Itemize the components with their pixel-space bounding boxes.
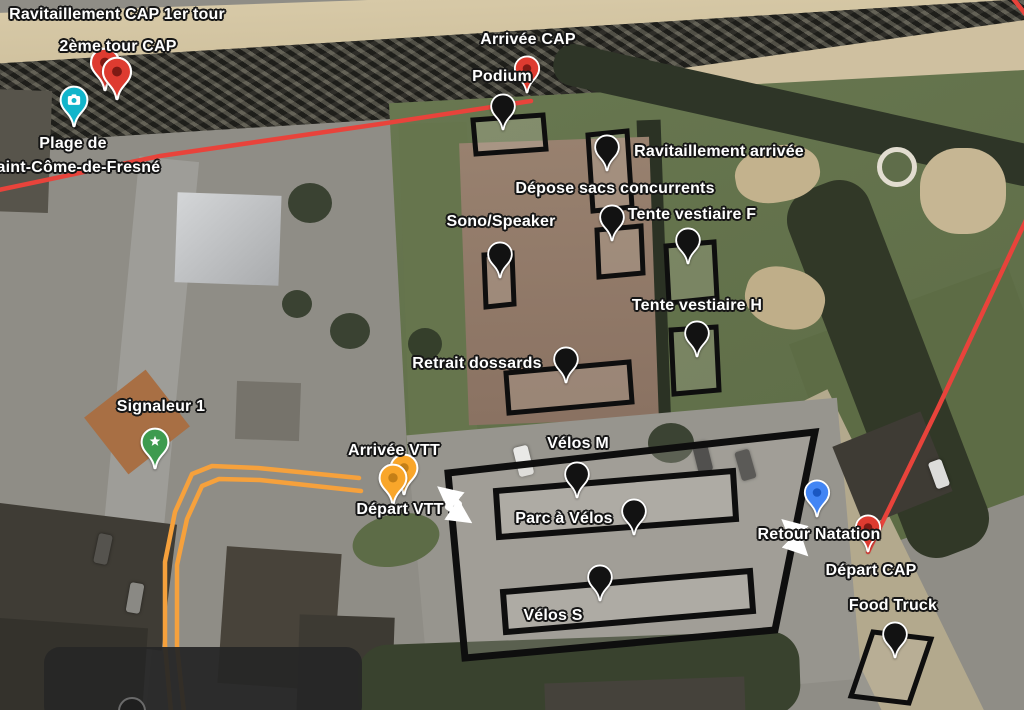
label-ravitaillement-arrivee: Ravitaillement arrivée	[634, 143, 804, 161]
label-depose-sacs: Dépose sacs concurrents	[515, 180, 714, 198]
label-tente-vestiaire-f: Tente vestiaire F	[628, 206, 757, 224]
black-pin-tente-mid-icon[interactable]	[674, 227, 702, 265]
label-velos-s: Vélos S	[523, 607, 582, 625]
callout-icon	[118, 697, 146, 710]
label-arrivee-vtt: Arrivée VTT	[348, 442, 440, 460]
label-parc-a-velos: Parc à Vélos	[515, 510, 613, 528]
label-depart-vtt: Départ VTT	[356, 501, 443, 519]
black-pin-ravitaillement-arrivee-icon[interactable]	[593, 134, 621, 172]
label-ravitaillement-cap-1er-tour: Ravitaillement CAP 1er tour	[9, 6, 225, 24]
label-tente-vestiaire-h: Tente vestiaire H	[632, 297, 762, 315]
camera-pin-plage-icon[interactable]	[59, 85, 90, 128]
label-depart-cap: Départ CAP	[826, 562, 917, 580]
satellite-map: Ravitaillement CAP 1er tour 2ème tour CA…	[0, 0, 1024, 710]
label-plage-line2: Saint-Côme-de-Fresné	[0, 159, 160, 177]
label-arrivee-cap: Arrivée CAP	[480, 31, 576, 49]
label-plage-line1: Plage de	[39, 135, 106, 153]
black-pin-tente-f-icon[interactable]	[598, 204, 626, 242]
blue-pin-retour-natation-icon[interactable]	[803, 479, 831, 518]
orange-pin-depart-vtt-icon[interactable]	[378, 463, 409, 506]
star-pin-signaleur-icon[interactable]	[140, 427, 171, 470]
black-pin-velos-m-icon[interactable]	[563, 461, 591, 499]
label-podium: Podium	[472, 68, 532, 86]
black-pin-retrait-dossards-icon[interactable]	[552, 346, 580, 384]
label-velos-m: Vélos M	[547, 435, 609, 453]
label-sono-speaker: Sono/Speaker	[446, 213, 555, 231]
black-pin-velos-s-icon[interactable]	[586, 564, 614, 602]
black-pin-sono-icon[interactable]	[486, 241, 514, 279]
black-pin-tente-h-icon[interactable]	[683, 320, 711, 358]
label-retrait-dossards: Retrait dossards	[412, 355, 541, 373]
label-2eme-tour-cap: 2ème tour CAP	[59, 38, 176, 56]
callout-panel[interactable]	[44, 647, 362, 710]
label-food-truck: Food Truck	[849, 597, 937, 615]
label-retour-natation: Retour Natation	[758, 526, 881, 544]
red-pin-2eme-tour-icon[interactable]	[101, 56, 134, 101]
label-signaleur-1: Signaleur 1	[117, 398, 205, 416]
black-pin-food-truck-icon[interactable]	[881, 621, 909, 659]
route-cap-corner[interactable]	[1011, 0, 1024, 16]
route-cap-east[interactable]	[868, 218, 1024, 552]
black-pin-parc-velos-icon[interactable]	[620, 498, 648, 536]
black-pin-podium-zone-icon[interactable]	[489, 93, 517, 131]
